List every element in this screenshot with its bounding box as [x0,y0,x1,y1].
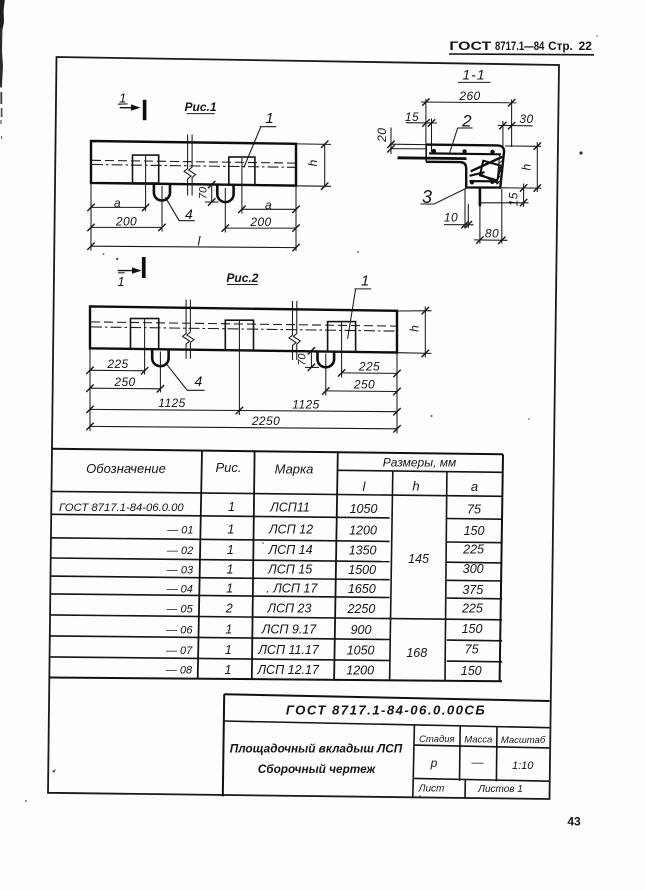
svg-text:—: — [471,755,485,769]
svg-text:1125: 1125 [292,398,319,412]
svg-text:20: 20 [375,128,389,143]
svg-text:260: 260 [458,89,480,103]
svg-text:Масштаб: Масштаб [501,735,546,746]
svg-text:30: 30 [519,112,533,126]
svg-text:ГОСТ 8717.1-84-06.0.00СБ: ГОСТ 8717.1-84-06.0.00СБ [286,703,486,718]
svg-text:р: р [430,756,438,770]
svg-text:145: 145 [408,552,429,566]
svg-text:h: h [412,479,419,494]
svg-text:4: 4 [185,206,193,222]
svg-text:1500: 1500 [348,563,376,577]
svg-text:1125: 1125 [158,396,185,410]
svg-text:225: 225 [358,359,380,373]
svg-text:150: 150 [464,524,485,538]
svg-text:43: 43 [567,815,581,829]
svg-text:1: 1 [361,272,369,289]
svg-text:1-1: 1-1 [462,67,485,83]
svg-text:1: 1 [227,543,234,557]
svg-text:— 05: — 05 [165,604,193,616]
svg-text:80: 80 [485,227,499,241]
svg-text:4: 4 [195,373,203,389]
svg-text:— 06: — 06 [165,625,193,637]
svg-text:Обозначение: Обозначение [86,461,166,476]
svg-text:. ЛСП 17: . ЛСП 17 [266,582,318,596]
svg-text:ЛСП 12.17: ЛСП 12.17 [256,663,319,677]
svg-text:75: 75 [465,643,479,657]
svg-text:1: 1 [225,663,232,677]
svg-text:ЛСП 23: ЛСП 23 [266,602,311,616]
svg-text:300: 300 [463,562,484,576]
svg-text:1: 1 [117,274,124,289]
svg-text:— 07: — 07 [165,645,193,657]
svg-text:1: 1 [265,110,273,127]
svg-text:Масса: Масса [464,735,492,746]
svg-text:Сборочный чертеж: Сборочный чертеж [258,762,377,776]
svg-text:1: 1 [227,563,234,577]
svg-text:ГОСТ 8717.1-84-06.0.00: ГОСТ 8717.1-84-06.0.00 [59,502,184,514]
svg-text:75: 75 [467,503,481,517]
svg-text:а: а [471,479,478,494]
svg-text:225: 225 [462,543,484,557]
svg-text:а: а [265,198,272,212]
svg-text:2250: 2250 [251,414,280,428]
svg-text:200: 200 [249,215,271,229]
svg-text:Листов 1: Листов 1 [477,784,523,795]
svg-text:— 08: — 08 [165,665,193,677]
svg-text:— 01: — 01 [166,525,193,537]
svg-text:150: 150 [462,622,483,636]
svg-text:2: 2 [225,602,233,616]
svg-text:— 02: — 02 [166,545,193,557]
svg-text:1: 1 [225,643,232,657]
svg-text:Площадочный вкладыш ЛСП: Площадочный вкладыш ЛСП [230,742,403,756]
svg-text:ЛСП 9.17: ЛСП 9.17 [261,623,318,637]
svg-text:Размеры, мм: Размеры, мм [383,456,456,470]
svg-text:h: h [407,325,421,332]
svg-text:70: 70 [297,353,309,366]
svg-text:1350: 1350 [349,544,377,558]
svg-text:250: 250 [353,378,375,392]
svg-text:Лист: Лист [418,784,445,795]
svg-text:1: 1 [228,500,235,514]
svg-text:900: 900 [351,623,372,637]
svg-text:ЛСП11: ЛСП11 [269,501,310,515]
svg-text:70: 70 [198,186,210,199]
svg-text:1:10: 1:10 [512,760,534,772]
svg-text:1: 1 [226,582,233,596]
svg-text:1200: 1200 [349,524,377,538]
svg-text:h: h [520,164,534,171]
svg-text:ЛСП 14: ЛСП 14 [268,543,313,557]
svg-text:15: 15 [405,110,419,124]
svg-text:Рис.2: Рис.2 [226,271,258,285]
svg-text:а: а [114,196,121,210]
svg-text:ЛСП 11.17: ЛСП 11.17 [257,643,320,657]
svg-text:10: 10 [444,211,458,225]
svg-text:Рис.1: Рис.1 [184,100,216,114]
svg-text:— 04: — 04 [166,584,193,596]
svg-text:— 03: — 03 [166,565,194,577]
svg-text:1: 1 [225,623,232,637]
svg-text:250: 250 [113,375,135,389]
svg-text:Рис.: Рис. [215,460,241,475]
svg-text:2250: 2250 [346,602,375,616]
svg-text:1050: 1050 [350,502,378,516]
svg-text:1: 1 [119,90,126,105]
svg-text:l: l [198,233,202,248]
svg-text:1050: 1050 [347,644,375,658]
svg-text:ЛСП 12: ЛСП 12 [268,523,313,537]
svg-text:1200: 1200 [346,664,374,678]
svg-text:1: 1 [227,523,234,537]
svg-text:15: 15 [507,192,521,206]
svg-text:200: 200 [115,214,137,228]
svg-text:Марка: Марка [275,462,314,477]
svg-text:150: 150 [461,664,482,678]
svg-text:Стадия: Стадия [419,734,455,745]
svg-text:ЛСП 15: ЛСП 15 [267,563,312,577]
svg-text:375: 375 [462,583,483,597]
svg-text:l: l [363,479,367,494]
svg-text:1650: 1650 [348,582,376,596]
svg-text:225: 225 [106,357,128,371]
svg-text:ГОСТ8717.1—84Стр.22: ГОСТ8717.1—84Стр.22 [449,39,592,53]
svg-text:225: 225 [461,602,483,616]
svg-text:h: h [306,159,320,166]
svg-text:168: 168 [406,646,427,660]
